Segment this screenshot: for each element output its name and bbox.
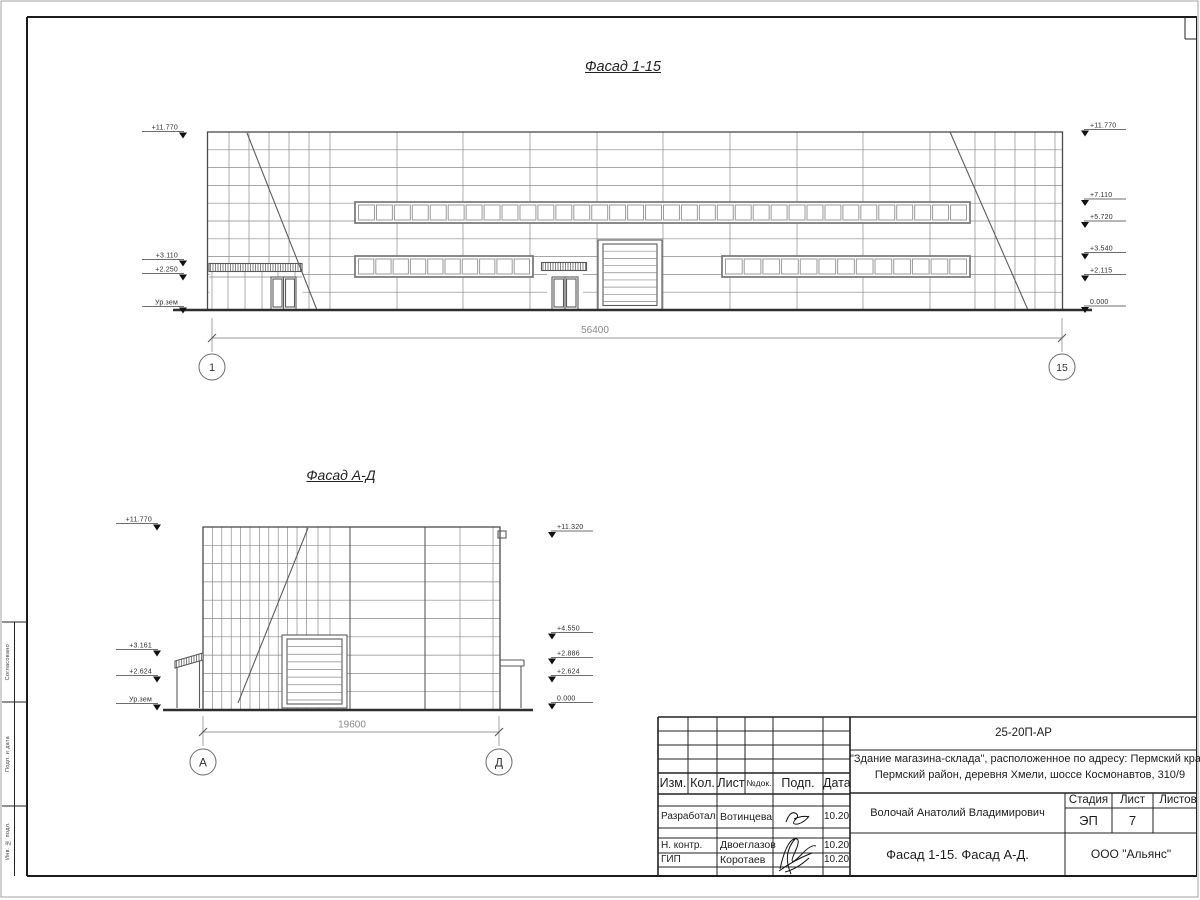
drawing-text: 56400	[581, 325, 609, 336]
elevation-mark: +11.320	[548, 524, 593, 538]
svg-text:+7.110: +7.110	[1090, 192, 1112, 199]
drawing-text: 19600	[338, 720, 366, 731]
col-ndok: №док.	[745, 773, 773, 794]
row-name-gip: Коротаев	[720, 853, 765, 867]
svg-text:+2.624: +2.624	[129, 669, 152, 676]
col-data: Дата	[823, 773, 850, 794]
row-role-razrabotal: Разработал	[661, 806, 715, 828]
svg-text:+4.550: +4.550	[557, 626, 580, 633]
svg-text:+3.161: +3.161	[129, 643, 152, 650]
row-date-gip: 10.20	[823, 853, 850, 867]
side-strip-label: Инв. № подл.	[5, 822, 11, 860]
svg-text:+11.320: +11.320	[557, 524, 583, 531]
project-description-line1: "Здание магазина-склада", расположенное …	[850, 753, 1200, 765]
elevation-mark: +4.550	[548, 626, 593, 640]
stage-value: ЭП	[1065, 808, 1112, 833]
stage-header: Стадия	[1065, 793, 1112, 808]
svg-text:+2.115: +2.115	[1090, 268, 1112, 275]
row-name-nkontr: Двоеглазов	[720, 838, 776, 853]
side-strip-soglasovano: Согласовано	[2, 622, 14, 702]
svg-text:Ур.зем: Ур.зем	[155, 300, 178, 307]
elevation-mark: +2.250	[142, 267, 187, 281]
elevation-mark: +3.110	[142, 253, 187, 267]
elevation-mark: +2.624	[548, 669, 593, 683]
drawing-title: Фасад 1-15. Фасад А-Д.	[850, 833, 1065, 876]
sheet-number: 7	[1112, 808, 1153, 833]
elevation-mark: +2.624	[116, 669, 161, 683]
elevation-mark: +11.770	[116, 517, 161, 531]
elevation-mark: +2.886	[548, 651, 593, 665]
row-role-nkontr: Н. контр.	[661, 838, 702, 853]
svg-text:+3.110: +3.110	[156, 253, 178, 260]
row-date-nkontr: 10.20	[823, 838, 850, 853]
svg-text:+11.770: +11.770	[1090, 123, 1116, 130]
svg-text:+5.720: +5.720	[1090, 214, 1113, 221]
col-list: Лист	[717, 773, 745, 794]
col-izm: Изм.	[658, 773, 688, 794]
side-strip-podp-data: Подп. и дата	[2, 702, 14, 806]
elevation-mark: +5.720	[1081, 214, 1126, 228]
sheet-header: Лист	[1112, 793, 1153, 808]
drawing-text: А	[199, 756, 207, 770]
col-kol: Кол.	[688, 773, 717, 794]
svg-text:+11.770: +11.770	[126, 517, 152, 524]
drawing-sheet: 56400115+11.770+3.110+2.250Ур.зем+11.770…	[0, 0, 1200, 900]
elevation-mark: +3.161	[116, 643, 161, 657]
drawing-text: 1	[209, 362, 215, 374]
drawing-canvas: 56400115+11.770+3.110+2.250Ур.зем+11.770…	[0, 0, 1200, 900]
row-role-gip: ГИП	[661, 853, 681, 867]
elevation-mark: +7.110	[1081, 192, 1126, 206]
facade-1-15-title: Фасад 1-15	[538, 59, 708, 75]
svg-text:+11.770: +11.770	[152, 125, 178, 132]
drawing-text: 15	[1056, 362, 1068, 374]
company-name: ООО "Альянс"	[1065, 833, 1197, 876]
svg-text:0.000: 0.000	[557, 696, 576, 703]
drawing-text: Д	[495, 756, 503, 770]
project-description-line2: Пермский район, деревня Хмели, шоссе Кос…	[850, 769, 1200, 781]
col-podp: Подп.	[773, 773, 823, 794]
side-strip-inv-podl: Инв. № подл.	[2, 806, 14, 876]
facade-a-d-drawing: 19600АД+11.770+3.161+2.624Ур.зем+11.320+…	[116, 517, 593, 776]
svg-text:+2.250: +2.250	[155, 267, 178, 274]
svg-text:Ур.зем: Ур.зем	[129, 697, 152, 704]
facade-1-15-drawing: 56400115+11.770+3.110+2.250Ур.зем+11.770…	[142, 123, 1126, 381]
svg-text:+2.886: +2.886	[557, 651, 580, 658]
signature-razrabotal	[786, 813, 809, 824]
elevation-mark: 0.000	[548, 696, 593, 710]
elevation-mark: +2.115	[1081, 268, 1126, 282]
facade-a-d-title: Фасад А-Д	[256, 467, 426, 483]
svg-text:0.000: 0.000	[1090, 299, 1109, 306]
svg-text:+3.540: +3.540	[1090, 246, 1113, 253]
sheets-header: Листов	[1153, 793, 1200, 808]
approver-name: Волочай Анатолий Владимирович	[850, 793, 1065, 833]
elevation-mark: +3.540	[1081, 246, 1126, 260]
elevation-mark: +11.770	[1081, 123, 1126, 137]
svg-text:+2.624: +2.624	[557, 669, 580, 676]
side-strip-label: Согласовано	[5, 644, 11, 680]
row-date-razrabotal: 10.20	[823, 806, 850, 828]
doc-code: 25-20П-АР	[850, 717, 1197, 750]
signature-nkontr-gip	[779, 839, 816, 874]
elevation-mark: Ур.зем	[142, 300, 187, 314]
elevation-mark: Ур.зем	[116, 697, 161, 711]
row-name-razrabotal: Вотинцева	[720, 806, 772, 828]
elevation-mark: +11.770	[142, 125, 187, 139]
side-strip-label: Подп. и дата	[5, 736, 11, 772]
